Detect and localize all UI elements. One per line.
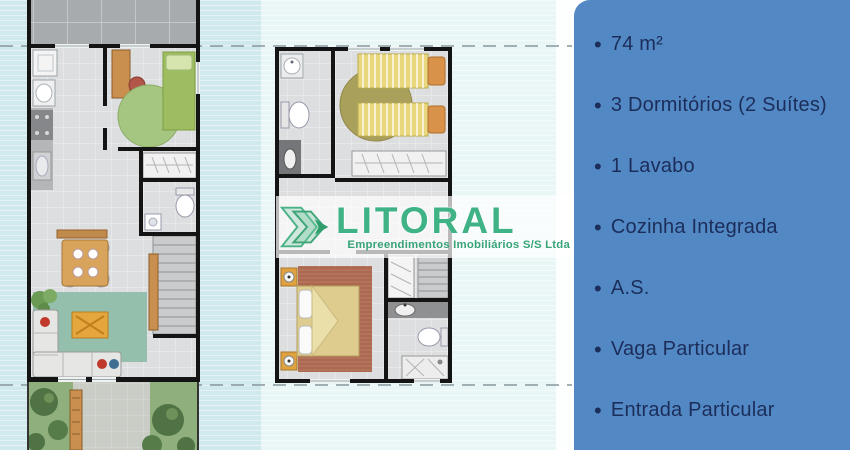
feature-entrance: • Entrada Particular [594,380,844,441]
toilet [418,328,440,346]
feature-lavabo: • 1 Lavabo [594,136,844,197]
brand-tagline: Empreendimentos Imobiliários S/S Ltda [336,239,572,251]
feature-label: A.S. [611,277,650,300]
features-panel: • 74 m² • 3 Dormitórios (2 Suítes) • 1 L… [574,0,850,450]
feature-kitchen: • Cozinha Integrada [594,197,844,258]
feature-parking: • Vaga Particular [594,319,844,380]
dining-table [62,240,108,286]
feature-laundry: • A.S. [594,258,844,319]
feature-label: Entrada Particular [611,399,775,422]
feature-label: Vaga Particular [611,338,749,361]
bench [70,390,82,450]
toilet [289,102,309,128]
sideboard [57,230,107,238]
bullet-icon: • [594,279,602,299]
closet-stairs [388,256,448,298]
bullet-icon: • [594,401,602,421]
stairs [149,236,196,334]
shower-box [402,356,448,379]
feature-label: 3 Dormitórios (2 Suítes) [611,94,827,117]
feature-area: • 74 m² [594,14,844,75]
ground-floor-plan [27,0,200,450]
handrail [149,254,158,330]
brand-name: LITORAL [336,204,572,238]
listing-image: LITORAL Empreendimentos Imobiliários S/S… [0,0,850,450]
bullet-icon: • [594,157,602,177]
feature-label: 1 Lavabo [611,155,695,178]
desk [112,50,130,98]
feature-label: Cozinha Integrada [611,216,778,239]
toilet [176,195,194,217]
bullet-icon: • [594,218,602,238]
bullet-icon: • [594,340,602,360]
feature-label: 74 m² [611,33,663,56]
feature-bedrooms: • 3 Dormitórios (2 Suítes) [594,75,844,136]
bullet-icon: • [594,35,602,55]
bullet-icon: • [594,96,602,116]
litoral-logo-icon [278,198,336,256]
watermark-band: LITORAL Empreendimentos Imobiliários S/S… [276,196,575,258]
garden [27,382,199,450]
